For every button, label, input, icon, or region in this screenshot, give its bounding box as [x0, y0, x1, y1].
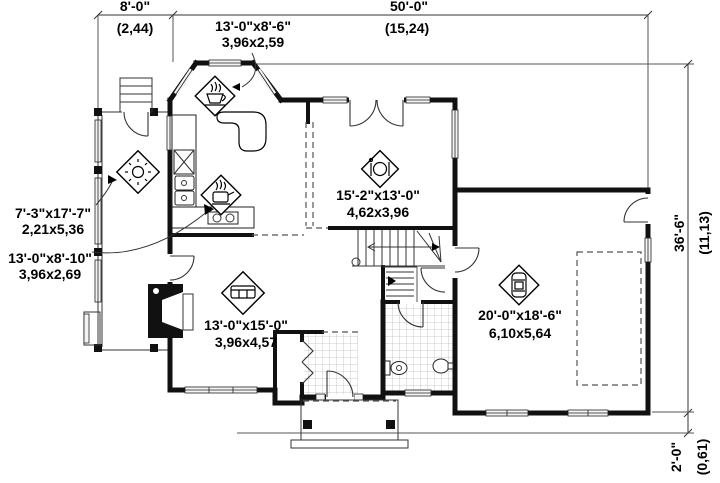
porch-step [291, 440, 408, 448]
kitchen-island [217, 112, 266, 151]
room-labels: 13'-0"x8'-6" 3,96x2,59 7'-3"x17'-7" 2,21… [8, 18, 562, 350]
dimension-annotations: 8'-0" (2,44) 50'-0" (15,24) 36'-6" (11,1… [94, 0, 712, 475]
dining-label-imperial: 15'-2"x13'-0" [336, 187, 420, 203]
bathroom-tile-floor [385, 304, 453, 391]
front-porch [291, 400, 408, 448]
stair-railing-newel [352, 258, 360, 266]
hearth [183, 294, 193, 330]
sun-icon [117, 151, 159, 193]
fireplace [148, 284, 193, 338]
car-icon [499, 265, 539, 305]
coffee-cup-icon [195, 76, 235, 116]
kitchen-label-metric: 3,96x2,69 [19, 266, 81, 282]
dim-bottom-right-imperial: 2'-0" [668, 442, 684, 472]
plate-and-cutlery-icon [362, 151, 399, 188]
garage-storage-outline [577, 252, 641, 385]
dim-top-left-imperial: 8'-0" [120, 0, 150, 14]
dining-side-window [452, 110, 458, 158]
garage-side-door [624, 194, 652, 224]
porch-post [94, 108, 102, 116]
garage-window-1 [486, 410, 528, 416]
porch-steps [120, 78, 152, 112]
nook-window-top [209, 60, 241, 66]
garage-label-imperial: 20'-0"x18'-6" [478, 307, 562, 323]
porch-entry-door [122, 109, 150, 136]
dining-label-metric: 4,62x3,96 [347, 204, 409, 220]
porch-post [94, 166, 102, 174]
porch-post [150, 344, 158, 352]
bathroom-window [405, 390, 431, 396]
living-label-metric: 3,96x4,57 [215, 334, 277, 350]
french-doors [349, 96, 404, 126]
dining-window-left [323, 97, 347, 103]
porch-label-metric: 2,21x5,36 [22, 221, 84, 237]
garage-window-2 [568, 410, 608, 416]
kitchen-label-imperial: 13'-0"x8'-10" [8, 250, 92, 266]
hall-door [421, 268, 445, 292]
dim-top-metric: (15,24) [385, 20, 429, 36]
dim-right-imperial: 36'-6" [671, 214, 687, 252]
staircase [352, 230, 445, 296]
garage-label-metric: 6,10x5,64 [489, 325, 551, 341]
entry-tile-floor [304, 334, 358, 395]
porch-living-door [166, 254, 194, 282]
tiled-floors [304, 304, 453, 395]
sofa-icon [222, 272, 264, 314]
dim-top-left-metric: (2,44) [117, 20, 154, 36]
dim-right-metric: (11,13) [696, 211, 712, 255]
garage-entry-door [451, 246, 479, 278]
living-label-imperial: 13'-0"x15'-0" [204, 317, 288, 333]
cooktop [208, 212, 238, 224]
porch-column [386, 420, 395, 429]
double-sink [175, 176, 194, 205]
porch-window [95, 120, 101, 302]
garage-side-window [645, 238, 651, 262]
dinette-label-imperial: 13'-0"x8'-6" [215, 18, 291, 34]
dinette-label-metric: 3,96x2,59 [222, 34, 284, 50]
range [174, 150, 194, 174]
floor-plan-drawing: 8'-0" (2,44) 50'-0" (15,24) 36'-6" (11,1… [0, 0, 720, 483]
dim-bottom-right-metric: (0,61) [694, 439, 710, 476]
nook-window-angled-left [176, 70, 192, 94]
floor-plan-svg: 8'-0" (2,44) 50'-0" (15,24) 36'-6" (11,1… [0, 0, 720, 483]
toilet [385, 361, 407, 375]
stair-direction-arrow [368, 243, 440, 251]
dining-window-right [406, 97, 430, 103]
porch-label-imperial: 7'-3"x17'-7" [15, 205, 91, 221]
dim-top-imperial: 50'-0" [390, 0, 428, 14]
basement-stairs [386, 272, 414, 296]
nook-window-angled-right [258, 70, 274, 94]
porch-column [303, 420, 312, 429]
living-window [185, 387, 257, 393]
